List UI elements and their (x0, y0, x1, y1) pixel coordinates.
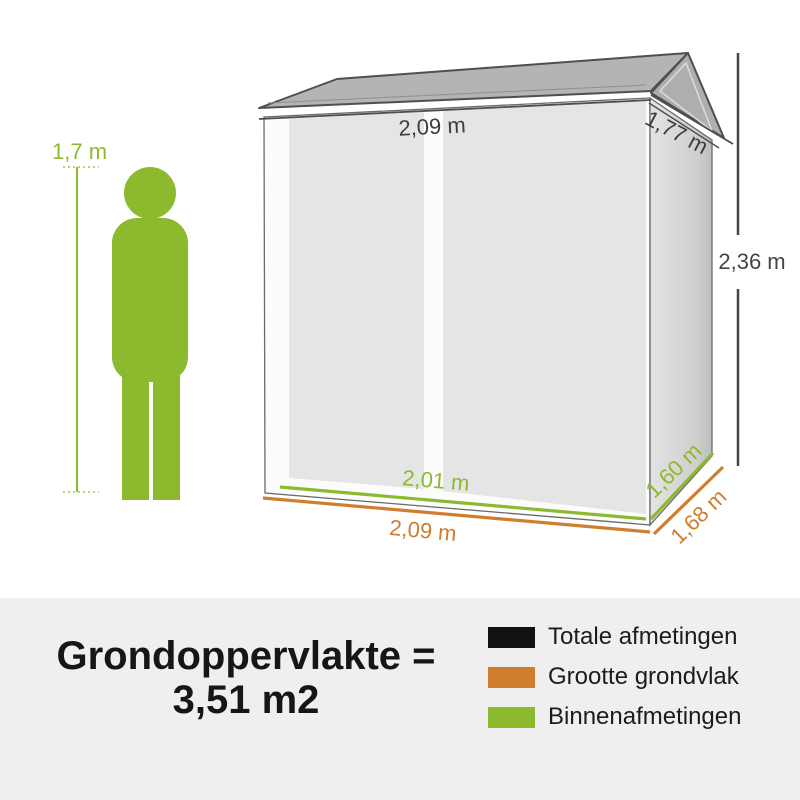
legend-label-footprint: Grootte grondvlak (548, 663, 739, 691)
product-dimension-diagram: 1,7 m (0, 0, 800, 800)
person-figure: 1,7 m (52, 139, 188, 500)
legend-swatch-footprint (488, 667, 535, 688)
person-left-leg (122, 350, 149, 500)
person-head (124, 167, 176, 219)
floor-area-title-line1: Grondoppervlakte = (22, 634, 470, 678)
floor-area-title: Grondoppervlakte = 3,51 m2 (22, 634, 470, 722)
base-width-label: 2,09 m (388, 515, 457, 546)
legend-item-footprint: Grootte grondvlak (488, 666, 741, 688)
shed-door-panel-right (443, 99, 646, 514)
shed-door-panel-left (289, 112, 424, 489)
legend: Totale afmetingen Grootte grondvlak Binn… (488, 626, 741, 746)
legend-swatch-total (488, 627, 535, 648)
total-height-label: 2,36 m (718, 249, 785, 274)
legend-item-total: Totale afmetingen (488, 626, 741, 648)
person-right-leg (153, 350, 180, 500)
legend-label-inner: Binnenafmetingen (548, 703, 741, 731)
floor-area-title-line2: 3,51 m2 (22, 678, 470, 722)
legend-swatch-inner (488, 707, 535, 728)
legend-item-inner: Binnenafmetingen (488, 706, 741, 728)
shed-diagram: 1,7 m (0, 0, 800, 600)
summary-panel: Grondoppervlakte = 3,51 m2 Totale afmeti… (0, 598, 800, 800)
legend-label-total: Totale afmetingen (548, 623, 737, 651)
roof-width-label: 2,09 m (398, 112, 466, 140)
person-height-label: 1,7 m (52, 139, 107, 164)
